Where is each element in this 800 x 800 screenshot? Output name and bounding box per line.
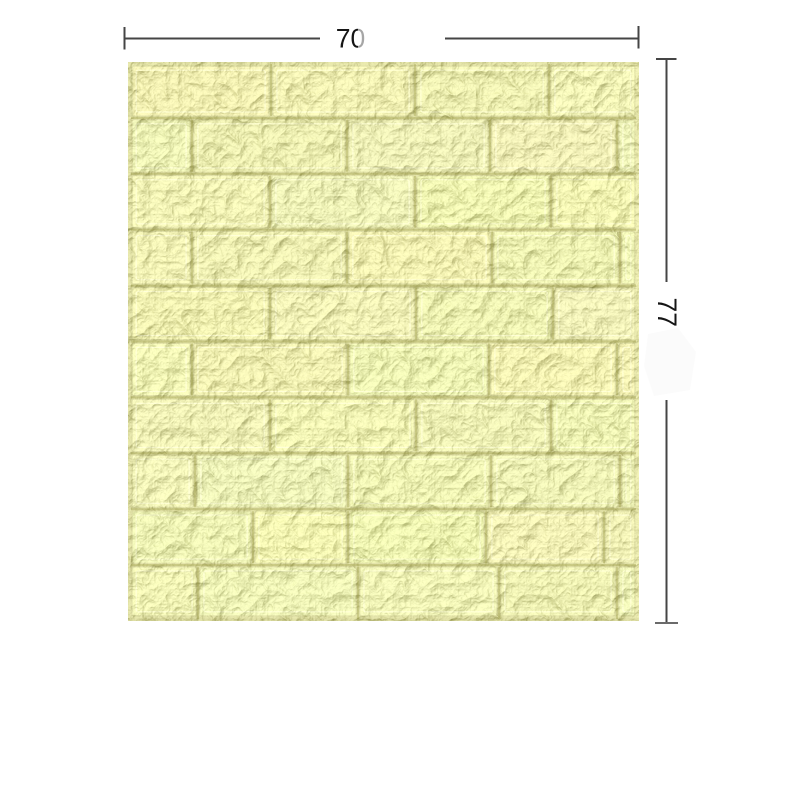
svg-text:77: 77	[652, 298, 682, 327]
